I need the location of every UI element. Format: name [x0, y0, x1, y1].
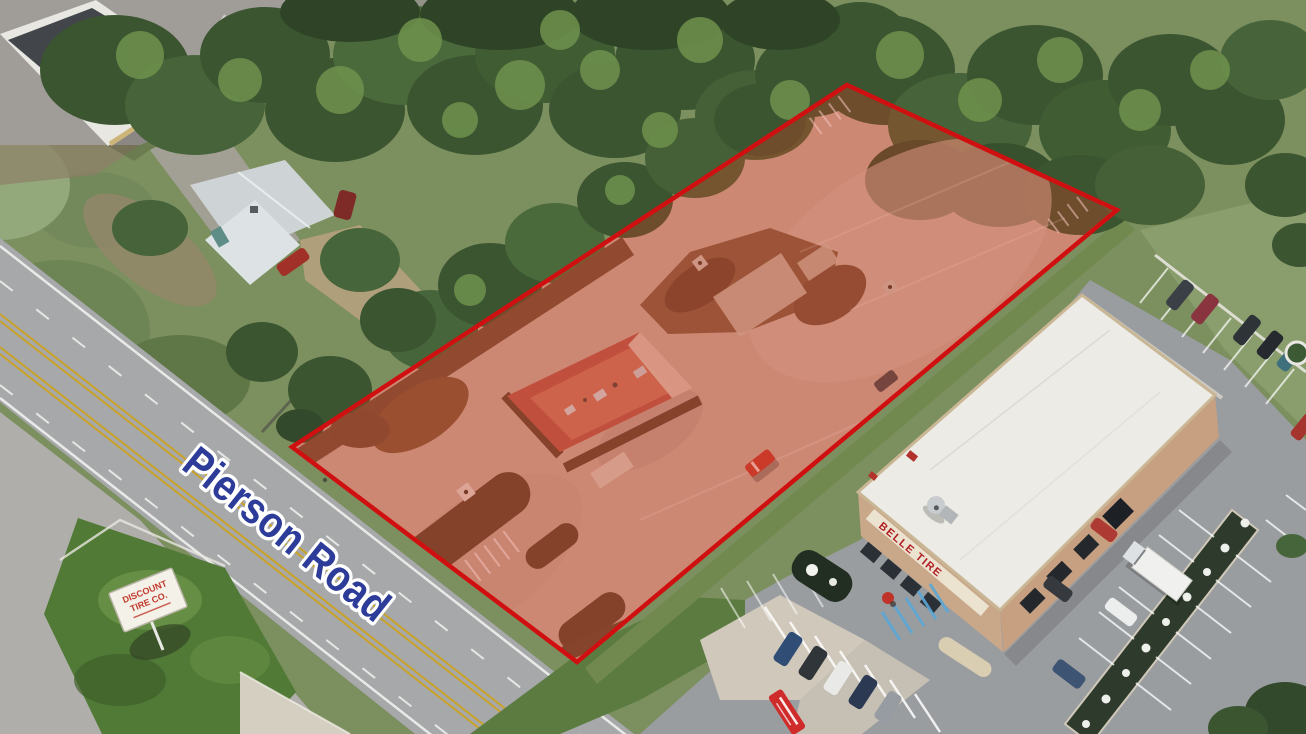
aerial-map: BELLE TIRE	[0, 0, 1306, 734]
planter	[1286, 342, 1306, 364]
